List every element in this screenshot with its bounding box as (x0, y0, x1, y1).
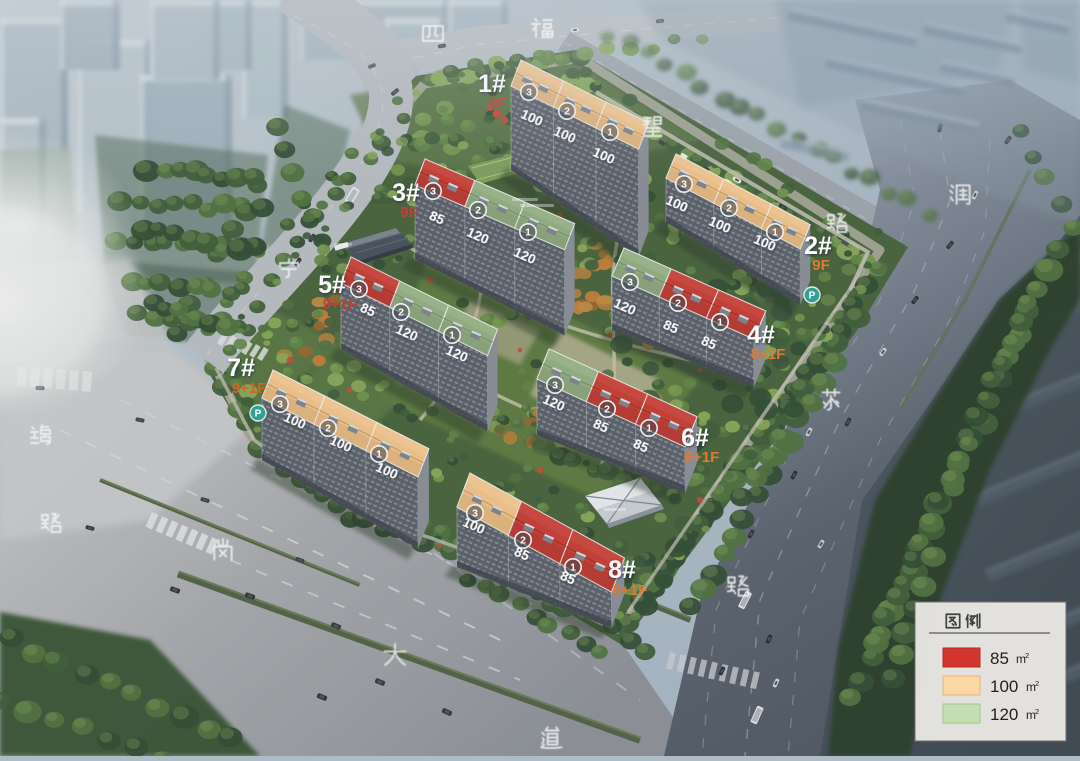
svg-text:2: 2 (1025, 651, 1029, 660)
svg-text:2: 2 (1035, 707, 1039, 716)
svg-text:2: 2 (1035, 679, 1039, 688)
svg-text:120: 120 (990, 705, 1018, 724)
svg-text:85: 85 (990, 649, 1009, 668)
svg-text:100: 100 (990, 677, 1018, 696)
